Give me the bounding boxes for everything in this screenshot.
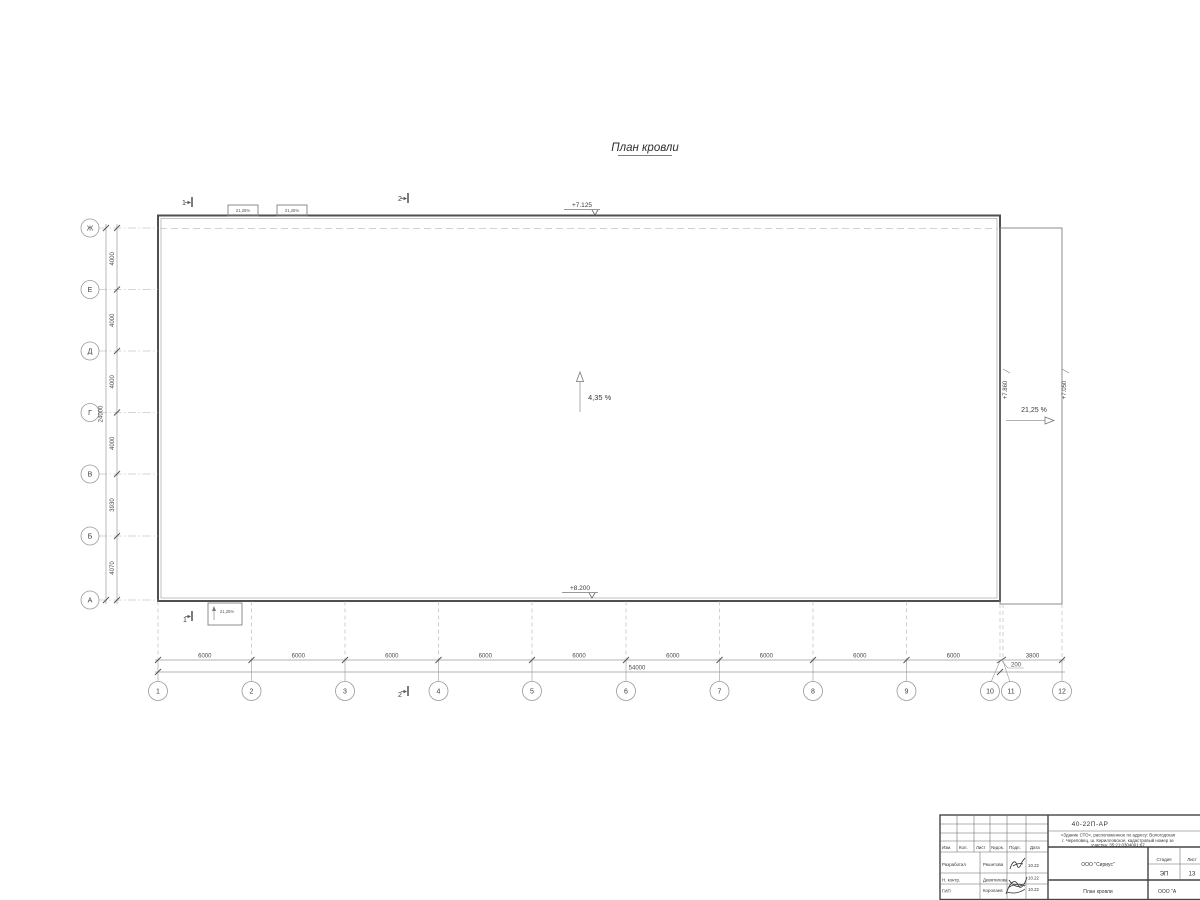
axis-11-leader — [1003, 661, 1010, 682]
tb-stage-label: Стадия — [1157, 857, 1173, 862]
col-axes: 1 2 3 4 5 6 7 8 9 10 11 12 — [149, 602, 1072, 701]
dim-row: 4000 — [110, 436, 116, 450]
annotations: +7.125 +8.200 4,35 % 21,25 % +7.860 +7.0… — [182, 193, 1069, 699]
tb-name: Решетова — [983, 862, 1004, 867]
tb-col-podp: Подп. — [1009, 845, 1021, 850]
axis-label: Е — [88, 287, 93, 294]
tb-role: Н. контр. — [942, 878, 960, 883]
bottom-canopy-arrowhead — [212, 606, 216, 611]
dim-col: 6000 — [198, 654, 212, 660]
axis-label: А — [88, 598, 93, 605]
axis-label: В — [88, 472, 93, 479]
tb-date: 10.22 — [1028, 876, 1040, 881]
tb-role: ГИП — [942, 889, 951, 894]
elevation-tick-icon — [1003, 369, 1010, 373]
top-canopy-1-slope: 21,25% — [236, 208, 250, 213]
slope-right-label: 21,25 % — [1021, 407, 1047, 414]
dim-col: 6000 — [572, 654, 586, 660]
tb-sheet-value: 13 — [1189, 872, 1196, 878]
tb-sheet-title: План кровли — [1083, 889, 1113, 895]
section-mark-1-bottom: 1 — [183, 611, 192, 624]
axis-label: 5 — [530, 689, 534, 696]
tb-company2: ООО "А — [1158, 889, 1177, 895]
dim-col: 6000 — [666, 654, 680, 660]
axis-label: 1 — [156, 689, 160, 696]
tb-date: 10.22 — [1028, 887, 1040, 892]
axis-label: 7 — [718, 689, 722, 696]
axis-label: 2 — [250, 689, 254, 696]
elevation-canopy-high: +7.860 — [1003, 380, 1009, 399]
slope-arrow-icon — [577, 372, 584, 382]
tb-col-kol: Кол. — [959, 845, 968, 850]
svg-text:1: 1 — [183, 617, 187, 624]
axis-label: Б — [88, 534, 93, 541]
elevation-canopy-low: +7.050 — [1062, 380, 1068, 399]
elevation-tick-icon — [1062, 369, 1069, 373]
tb-name: Королаев — [983, 888, 1003, 893]
top-canopy-2-slope: 21,25% — [285, 208, 299, 213]
dim-col-total: 54000 — [629, 666, 646, 672]
svg-text:1: 1 — [182, 200, 186, 207]
tb-description-line: «Здание СТО», расположенное по адресу: В… — [1061, 833, 1176, 838]
title-block: Изм. Кол. Лист №док. Подп. Дата Разработ… — [940, 815, 1200, 900]
axis-label: 11 — [1007, 689, 1014, 696]
dimensions-bottom: 6000 6000 6000 6000 6000 6000 6000 6000 … — [155, 654, 1065, 676]
tb-date: 10.22 — [1028, 863, 1040, 868]
row-axes: Ж Е Д Г В Б А — [81, 219, 158, 609]
roof-plan-sheet: План кровли 21,25% 21,25% 21,25% Ж — [0, 0, 1200, 900]
axis-label: 9 — [905, 689, 909, 696]
roof-outline — [158, 216, 1000, 602]
dim-col-right: 3800 — [1026, 654, 1040, 660]
bottom-canopy-slope: 21,25% — [220, 609, 234, 614]
axis-10-leader — [991, 661, 1000, 682]
dim-row: 4000 — [110, 313, 116, 327]
axis-label: Ж — [87, 226, 94, 233]
axis-label: Д — [88, 349, 93, 356]
elevation-top: +7.125 — [572, 202, 592, 209]
section-mark-1-top: 1 — [182, 197, 192, 207]
svg-text:2: 2 — [398, 196, 402, 203]
dim-col-gap: 200 — [1011, 663, 1022, 669]
dim-col: 6000 — [292, 654, 306, 660]
signature-2 — [1006, 877, 1027, 894]
dim-col: 6000 — [947, 654, 961, 660]
dim-row-total: 24000 — [99, 405, 105, 422]
tb-name: Девятилова — [983, 878, 1008, 883]
tb-col-list: Лист — [976, 845, 986, 850]
bottom-canopy — [208, 603, 242, 625]
section-mark-2-bottom: 2 — [398, 686, 408, 699]
building-outline: 21,25% 21,25% 21,25% — [158, 205, 1062, 625]
axis-label: 12 — [1058, 689, 1066, 696]
tb-doc-number: 40-22П-АР — [1072, 821, 1109, 828]
dimensions-left: 4000 4000 4000 4000 3930 4070 24000 — [99, 224, 121, 604]
tb-col-data: Дата — [1030, 845, 1040, 850]
axis-label: 4 — [437, 689, 441, 696]
dim-row: 4070 — [110, 561, 116, 575]
axis-label: Г — [88, 410, 92, 417]
dim-row: 3930 — [110, 498, 116, 512]
axis-label: 8 — [811, 689, 815, 696]
page-title: План кровли — [611, 142, 679, 154]
dim-row: 4000 — [110, 251, 116, 265]
roof-outline-inner — [161, 219, 997, 599]
slope-right-arrow-icon — [1045, 417, 1054, 424]
slope-main-label: 4,35 % — [588, 393, 612, 402]
dim-row: 4000 — [110, 374, 116, 388]
elevation-bottom: +8.200 — [570, 585, 590, 592]
tb-company: ООО "Сириус" — [1081, 862, 1115, 868]
drawing-title: План кровли — [611, 142, 679, 156]
tb-role: Разработал — [942, 862, 966, 867]
dim-col: 6000 — [760, 654, 774, 660]
axis-label: 3 — [343, 689, 347, 696]
tb-sheet-label: Лист — [1187, 857, 1197, 862]
tb-col-ndok: №док. — [991, 845, 1004, 850]
elevation-mark-icon — [592, 210, 598, 215]
dim-col: 6000 — [479, 654, 493, 660]
axis-label: 10 — [986, 689, 994, 696]
elevation-mark-icon — [589, 593, 595, 598]
right-canopy-outline — [1000, 228, 1062, 604]
dim-col: 6000 — [853, 654, 867, 660]
tb-stage-value: ЭП — [1160, 872, 1169, 878]
svg-text:2: 2 — [398, 692, 402, 699]
axis-label: 6 — [624, 689, 628, 696]
dim-col: 6000 — [385, 654, 399, 660]
section-mark-2-top: 2 — [398, 193, 408, 203]
signature-1 — [1010, 858, 1025, 869]
tb-description-line: участка: 35:21:0304001:67 — [1091, 842, 1145, 847]
tb-col-izm: Изм. — [942, 845, 951, 850]
